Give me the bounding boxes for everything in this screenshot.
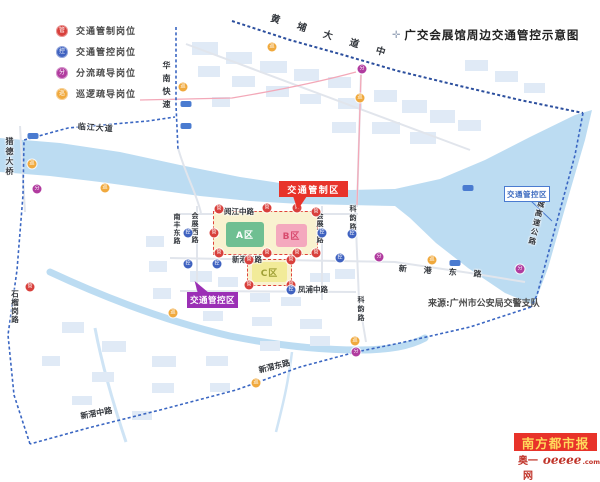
divert-post-marker-icon: 分 <box>352 348 361 357</box>
traffic-control-map-page: { "title": { "label": "广交会展馆周边交通管控示意图", … <box>0 0 600 469</box>
legend-item-label: 交通管控岗位 <box>76 45 136 58</box>
monitor-post-marker-icon: 控 <box>184 229 193 238</box>
divert-post-marker-icon: 分 <box>375 253 384 262</box>
control-post-marker-icon: 管 <box>312 249 321 258</box>
newspaper-logo: 南方都市报 <box>514 433 597 451</box>
exhibition-area-a: A区 <box>226 222 264 247</box>
road-shield <box>463 185 474 191</box>
road-label: 华南快速 <box>162 61 170 113</box>
road-label: 新港东路 <box>398 265 498 280</box>
road-label: 新滘中路 <box>80 407 113 421</box>
legend-item-monitor: 控交通管控岗位 <box>56 45 136 58</box>
control-post-marker-icon: 管 <box>245 281 254 290</box>
road-label: 石榴岗路 <box>11 290 19 324</box>
monitor-post-marker-icon: 控 <box>213 260 222 269</box>
divert-post-marker-icon: 分 <box>33 185 42 194</box>
site-latin: oeeee <box>543 453 582 467</box>
monitor-post-marker-icon: 控 <box>348 230 357 239</box>
control-post-marker-icon: 管 <box>287 256 296 265</box>
control-post-marker-icon: 管 <box>215 249 224 258</box>
road-label: 新滘东路 <box>258 359 291 375</box>
patrol-post-marker-icon: 巡 <box>351 337 360 346</box>
monitor-post-marker-icon: 控 <box>184 260 193 269</box>
monitor-post-marker-icon: 控 <box>287 286 296 295</box>
control-post-marker-icon: 管 <box>245 256 254 265</box>
patrol-post-marker-icon: 巡 <box>28 160 37 169</box>
legend-item-label: 巡逻疏导岗位 <box>76 87 136 100</box>
control-post-marker-icon: 管 <box>210 229 219 238</box>
patrol-post-marker-icon: 巡 <box>179 83 188 92</box>
divert-post-marker-icon: 分 <box>516 265 525 274</box>
exhibition-area-c: C区 <box>252 262 287 282</box>
page-title: ✛ 广交会展馆周边交通管控示意图 <box>392 27 579 43</box>
publisher-branding: 南方都市报 奥一网 oeeee .com <box>514 433 600 482</box>
road-label: 阅江中路 <box>224 208 254 216</box>
patrol-post-marker-icon: 巡 <box>356 94 365 103</box>
site-name: 奥一网 <box>514 452 542 482</box>
divert-post-icon: 分 <box>56 67 68 79</box>
monitor-post-marker-icon: 控 <box>318 229 327 238</box>
patrol-post-marker-icon: 巡 <box>268 43 277 52</box>
road-shield <box>28 133 39 139</box>
control-zone-callout: 交通管制区 <box>279 181 348 197</box>
road-label: 会展西路 <box>191 212 198 244</box>
title-text: 广交会展馆周边交通管控示意图 <box>404 27 579 43</box>
legend-item-control: 管交通管制岗位 <box>56 24 136 37</box>
road-shield <box>181 123 192 129</box>
monitor-post-icon: 控 <box>56 46 68 58</box>
manage-zone-callout-purple: 交通管控区 <box>187 292 238 308</box>
website-logo: 奥一网 oeeee .com <box>514 452 600 482</box>
divert-post-marker-icon: 分 <box>358 65 367 74</box>
legend-item-label: 分流疏导岗位 <box>76 66 136 79</box>
compass-icon: ✛ <box>392 30 400 41</box>
patrol-post-marker-icon: 巡 <box>101 184 110 193</box>
control-post-icon: 管 <box>56 25 68 37</box>
road-label: 凤浦中路 <box>298 286 328 294</box>
monitor-post-marker-icon: 控 <box>336 254 345 263</box>
patrol-post-marker-icon: 巡 <box>252 379 261 388</box>
patrol-post-marker-icon: 巡 <box>428 256 437 265</box>
control-post-marker-icon: 管 <box>312 208 321 217</box>
legend-item-label: 交通管制岗位 <box>76 24 136 37</box>
patrol-post-icon: 巡 <box>56 88 68 100</box>
legend-item-divert: 分分流疏导岗位 <box>56 66 136 79</box>
control-post-marker-icon: 管 <box>263 204 272 213</box>
road-label: 科韵路 <box>357 296 364 323</box>
control-post-marker-icon: 管 <box>263 249 272 258</box>
road-label: 南丰东路 <box>173 213 180 245</box>
road-shield <box>181 101 192 107</box>
legend-item-patrol: 巡巡逻疏导岗位 <box>56 87 136 100</box>
road-label: 临江大道 <box>77 123 113 133</box>
road-label: 科韵路 <box>349 205 356 232</box>
road-label: 黄埔大道中 <box>269 14 403 63</box>
map-legend: 管交通管制岗位控交通管控岗位分分流疏导岗位巡巡逻疏导岗位 <box>56 24 136 108</box>
exhibition-area-b: B区 <box>276 224 307 247</box>
site-tld: .com <box>582 458 600 466</box>
patrol-post-marker-icon: 巡 <box>169 309 178 318</box>
control-post-marker-icon: 管 <box>26 283 35 292</box>
source-credit: 来源:广州市公安局交警支队 <box>428 296 540 309</box>
road-shield <box>450 260 461 266</box>
control-post-marker-icon: 管 <box>215 205 224 214</box>
road-label: 猎德大桥 <box>5 137 13 177</box>
manage-zone-callout-blue: 交通管控区 <box>504 186 550 202</box>
